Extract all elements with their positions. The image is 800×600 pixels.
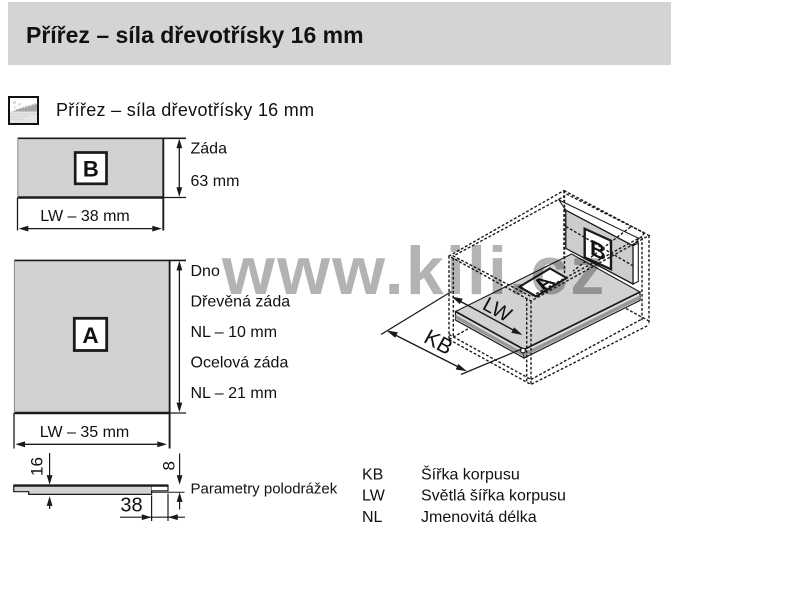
svg-text:38: 38 <box>120 495 142 517</box>
svg-text:Světlá šířka korpusu: Světlá šířka korpusu <box>421 488 566 505</box>
svg-text:Dno: Dno <box>191 263 220 280</box>
svg-text:NL: NL <box>362 509 383 526</box>
svg-text:Parametry polodrážek: Parametry polodrážek <box>191 481 338 498</box>
svg-text:Šířka korpusu: Šířka korpusu <box>421 465 520 484</box>
svg-text:NL – 10 mm: NL – 10 mm <box>191 324 278 341</box>
svg-text:8: 8 <box>160 461 179 470</box>
svg-text:A: A <box>82 323 98 348</box>
svg-text:LW – 35 mm: LW – 35 mm <box>40 424 130 441</box>
svg-text:LW – 38 mm: LW – 38 mm <box>40 208 130 225</box>
svg-text:16: 16 <box>28 457 47 476</box>
svg-text:B: B <box>83 157 99 182</box>
svg-text:Ocelová záda: Ocelová záda <box>191 355 289 372</box>
svg-text:Jmenovitá délka: Jmenovitá délka <box>421 509 537 526</box>
svg-text:LW: LW <box>362 488 386 505</box>
svg-text:KB: KB <box>362 467 383 484</box>
svg-text:NL – 21 mm: NL – 21 mm <box>191 385 278 402</box>
svg-text:KB: KB <box>420 325 457 360</box>
svg-text:Záda: Záda <box>191 140 228 157</box>
svg-text:63 mm: 63 mm <box>191 173 240 190</box>
